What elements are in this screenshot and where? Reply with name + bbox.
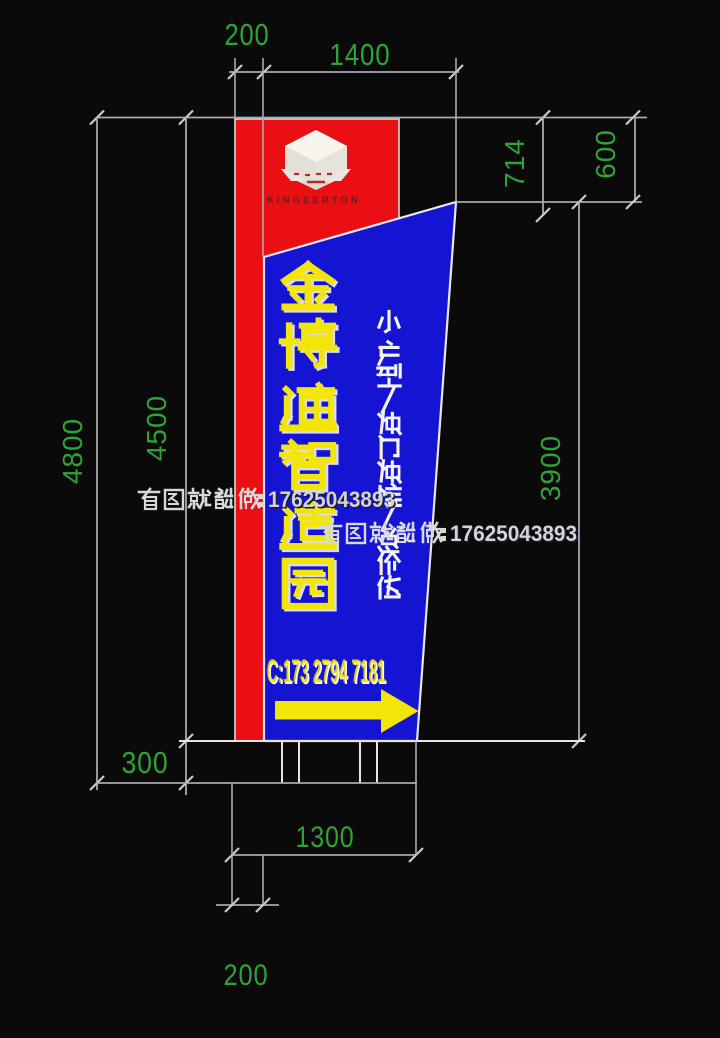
svg-text:4800: 4800 [57,418,88,484]
svg-text:C:173 2794 7181: C:173 2794 7181 [267,652,386,689]
svg-text:17625043893: 17625043893 [450,521,577,546]
svg-text:KINGEERTON: KINGEERTON [267,195,361,205]
svg-text:1400: 1400 [330,37,391,72]
svg-text:3900: 3900 [535,435,566,501]
svg-text:17625043893: 17625043893 [268,487,395,512]
svg-text:200: 200 [225,17,270,52]
svg-text:4500: 4500 [141,395,172,461]
svg-text:714: 714 [499,138,530,188]
svg-text:1300: 1300 [296,821,355,854]
svg-text:300: 300 [122,745,169,780]
svg-text:600: 600 [590,129,621,179]
svg-text:200: 200 [224,959,269,992]
